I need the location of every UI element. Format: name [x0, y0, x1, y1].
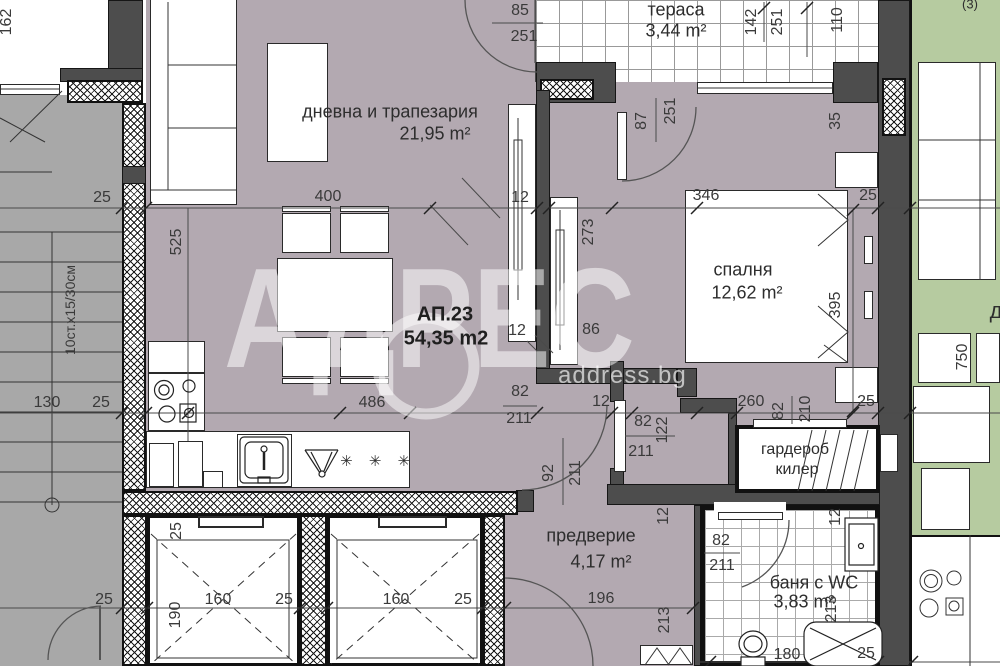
sink-icon [240, 437, 288, 483]
washbasin-icon [845, 518, 878, 571]
room-label-hallway: предверие [546, 526, 635, 547]
elevator-x [151, 534, 479, 664]
adjacent-details [918, 62, 996, 666]
floor-plan: АДРЕС address.bg дневна и трапезария 21,… [0, 0, 1000, 666]
dimension-ticks [116, 2, 918, 666]
apartment-number: АП.23 [417, 304, 473, 327]
adjacent-room-initial: д [990, 298, 1000, 324]
room-area-bedroom: 12,62 m² [711, 283, 782, 304]
room-area-terrace: 3,44 m² [645, 21, 706, 42]
bed-details [818, 194, 848, 362]
room-area-living: 21,95 m² [399, 124, 470, 145]
room-label-living: дневна и трапезария [302, 102, 478, 123]
room-label-wardrobe: гардероб [761, 441, 829, 459]
toilet-icon [739, 631, 767, 666]
room-area-hallway: 4,17 m² [570, 552, 631, 573]
shower-icon [804, 622, 882, 666]
room-label-closet: килер [775, 461, 818, 479]
room-label-terrace: тераса [647, 0, 704, 21]
stair-treads [0, 91, 122, 512]
kitchen-stars: ✳ ✳ ✳ [340, 452, 416, 470]
room-area-bathroom: 3,83 m² [773, 592, 834, 613]
shoe-cabinet-details [645, 648, 692, 665]
hood-icon [305, 450, 338, 477]
corner-mark: (3) [962, 0, 978, 12]
room-label-bedroom: спалня [714, 260, 773, 281]
room-label-bathroom: баня с WC [770, 573, 859, 594]
sofa-details [151, 2, 236, 190]
apartment-total-area: 54,35 m2 [404, 328, 489, 351]
stove-icon [155, 380, 197, 422]
plan-linework [0, 0, 1000, 666]
